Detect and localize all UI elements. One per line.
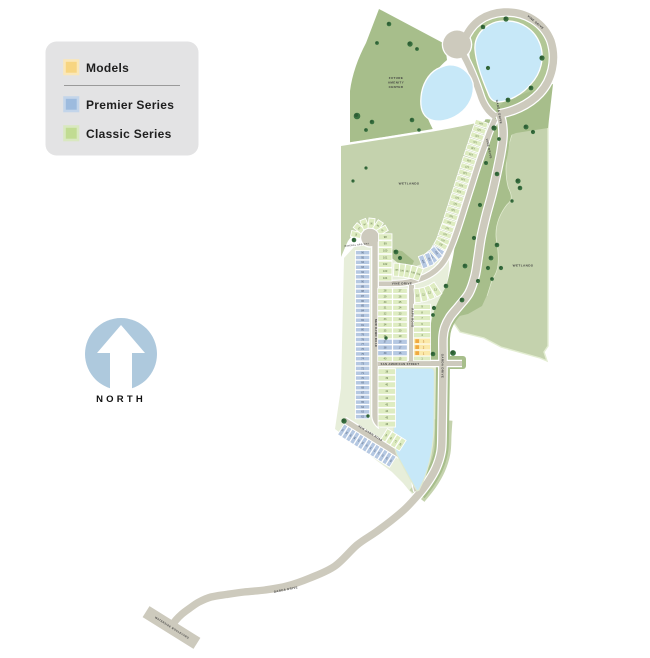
- svg-text:RAPA ROAD: RAPA ROAD: [411, 308, 415, 327]
- svg-text:NORTH: NORTH: [96, 394, 146, 405]
- svg-text:NEW DAWN ROAD: NEW DAWN ROAD: [374, 319, 378, 347]
- svg-text:SAN AMERICAN STREET: SAN AMERICAN STREET: [381, 362, 420, 366]
- svg-text:GARDA DRIVE: GARDA DRIVE: [441, 354, 445, 379]
- svg-text:VINE DRIVE: VINE DRIVE: [392, 282, 412, 286]
- svg-text:AMENITY: AMENITY: [388, 81, 404, 85]
- svg-text:CENTER: CENTER: [389, 85, 404, 89]
- svg-text:Classic Series: Classic Series: [86, 127, 172, 141]
- svg-text:102: 102: [383, 262, 388, 266]
- svg-text:103: 103: [383, 269, 388, 273]
- svg-text:104: 104: [383, 276, 388, 280]
- svg-text:FUTURE: FUTURE: [389, 76, 404, 80]
- svg-text:100: 100: [383, 249, 388, 253]
- svg-text:WETLANDS: WETLANDS: [513, 264, 534, 268]
- svg-text:101: 101: [383, 255, 388, 259]
- svg-text:Premier Series: Premier Series: [86, 98, 174, 112]
- svg-text:WETLANDS: WETLANDS: [399, 182, 420, 186]
- svg-text:Models: Models: [86, 61, 129, 75]
